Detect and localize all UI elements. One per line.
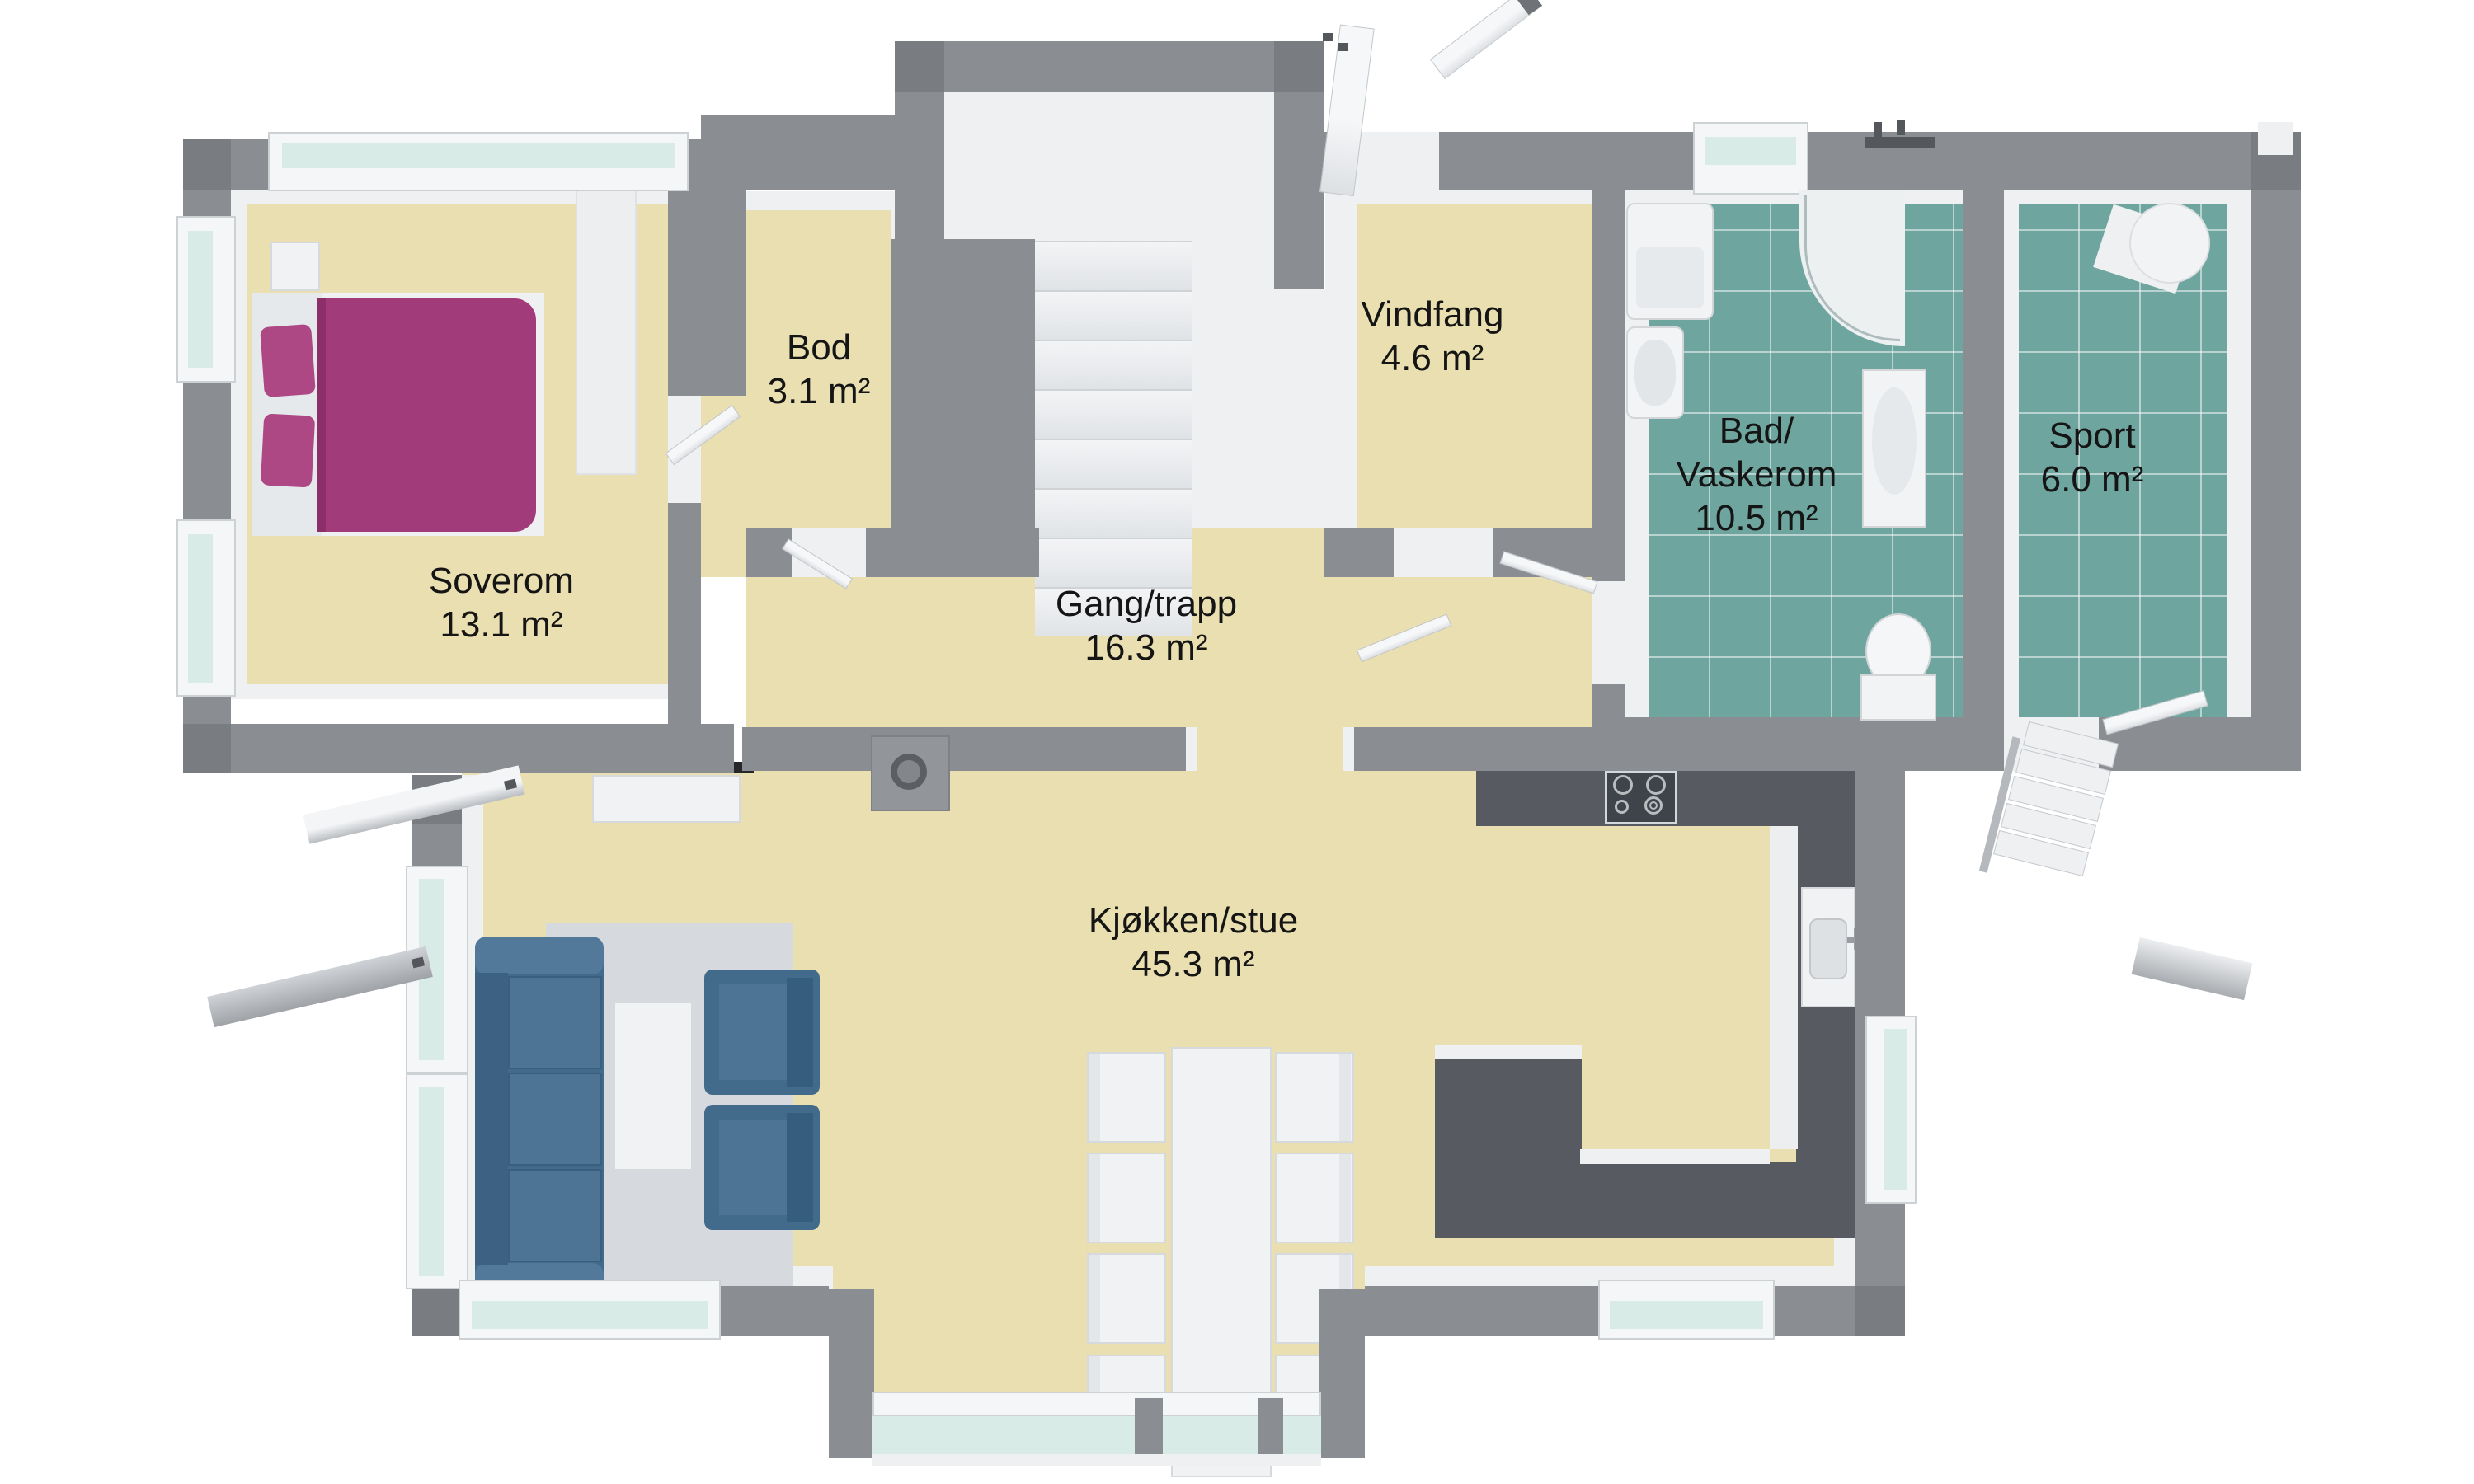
stair-tread bbox=[1035, 340, 1192, 389]
room-area: 45.3 m² bbox=[1089, 942, 1298, 986]
wall-stair-core bbox=[891, 239, 1035, 577]
door-opening bbox=[1348, 132, 1439, 190]
wall bbox=[1347, 727, 1625, 771]
kitchen-counter-bottom bbox=[1580, 1162, 1855, 1238]
wall-bay-pier bbox=[1319, 1289, 1365, 1458]
stair-tread bbox=[1035, 538, 1192, 587]
wall bbox=[183, 724, 734, 773]
bath-window-glass bbox=[1705, 137, 1796, 165]
room-name: Kjøkken/stue bbox=[1089, 899, 1298, 942]
gang-floor-upper bbox=[1192, 528, 1324, 577]
wall bbox=[701, 190, 746, 396]
dining-chair-back bbox=[1089, 1054, 1100, 1141]
stair-landing bbox=[944, 91, 1274, 241]
room-name: Gang/trapp bbox=[1056, 582, 1237, 626]
shower-mixer-knob bbox=[1874, 122, 1882, 137]
room-label-vindfang: Vindfang 4.6 m² bbox=[1362, 293, 1504, 380]
dining-chair-back bbox=[1339, 1154, 1351, 1242]
wall-corner bbox=[183, 139, 231, 190]
window-glass bbox=[188, 534, 213, 683]
room-name: Bod bbox=[768, 326, 871, 369]
door-jamb bbox=[1343, 727, 1354, 771]
window-glass bbox=[282, 143, 675, 168]
room-name: Sport bbox=[2041, 414, 2144, 458]
sofa-armrest bbox=[475, 937, 604, 974]
room-area: 6.0 m² bbox=[2041, 458, 2144, 501]
bay-window-glass bbox=[872, 1416, 1321, 1454]
room-name: Vindfang bbox=[1362, 293, 1504, 336]
wall bbox=[2251, 190, 2301, 771]
wall-stair-enclosure bbox=[895, 41, 1324, 92]
window-glass bbox=[188, 231, 213, 368]
room-label-soverom: Soverom 13.1 m² bbox=[429, 559, 574, 646]
dining-chair-back bbox=[1339, 1054, 1351, 1141]
stair-tread bbox=[1035, 439, 1192, 488]
wall-corner bbox=[1855, 1286, 1905, 1336]
wall bbox=[1625, 717, 2004, 771]
armchair-seat bbox=[719, 984, 788, 1080]
wall bbox=[701, 115, 895, 190]
kitchen-sink-basin bbox=[1809, 918, 1847, 979]
stair-tread bbox=[1035, 290, 1192, 340]
wall-corner bbox=[1274, 41, 1324, 92]
window-glass bbox=[419, 1087, 444, 1276]
door-opening bbox=[1592, 581, 1625, 684]
wall bbox=[1324, 528, 1394, 577]
open-window-shutter bbox=[207, 946, 433, 1027]
wall bbox=[746, 528, 792, 577]
window-glass bbox=[472, 1301, 708, 1329]
wall bbox=[1592, 528, 1625, 581]
bed-pillow bbox=[261, 413, 315, 487]
vanity-basin bbox=[1872, 387, 1917, 495]
room-label-sport: Sport 6.0 m² bbox=[2041, 414, 2144, 501]
wall bbox=[668, 190, 701, 396]
nightstand bbox=[270, 242, 320, 291]
room-area: 4.6 m² bbox=[1362, 336, 1504, 380]
sofa-cushion bbox=[508, 1073, 602, 1166]
bay-window-mullion bbox=[1258, 1398, 1283, 1454]
room-area: 16.3 m² bbox=[1056, 626, 1237, 669]
bay-window-sill bbox=[872, 1392, 1321, 1416]
room-label-bad-vaskerom: Bad/ Vaskerom 10.5 m² bbox=[1677, 409, 1837, 540]
kitchen-cabinet-face bbox=[1770, 826, 1798, 1149]
dining-chair-back bbox=[1089, 1154, 1100, 1242]
exterior-sill bbox=[2132, 937, 2253, 1000]
wall-bay-pier bbox=[829, 1289, 874, 1458]
coffee-table bbox=[614, 1001, 693, 1171]
stair-tread bbox=[1035, 488, 1192, 538]
wall-corner bbox=[183, 724, 231, 773]
washing-machine-lid bbox=[1636, 247, 1704, 308]
dining-chair-back bbox=[1089, 1255, 1100, 1342]
wall bbox=[1592, 190, 1625, 528]
room-label-kjokken-stue: Kjøkken/stue 45.3 m² bbox=[1089, 899, 1298, 986]
cooktop-burner-ring bbox=[1649, 801, 1658, 810]
armchair-back bbox=[787, 1113, 813, 1222]
wall-corner bbox=[895, 41, 944, 92]
room-label-bod: Bod 3.1 m² bbox=[768, 326, 871, 413]
wall bbox=[1365, 1286, 1600, 1336]
armchair-back bbox=[787, 978, 813, 1087]
shower-mixer bbox=[1865, 137, 1935, 148]
room-name: Bad/ bbox=[1677, 409, 1837, 453]
water-heater bbox=[2129, 203, 2210, 284]
wall bbox=[742, 727, 1192, 771]
sofa-cushion bbox=[508, 1169, 602, 1262]
wall bbox=[1439, 132, 1625, 190]
room-area: 13.1 m² bbox=[429, 603, 574, 646]
shower-mixer-knob bbox=[1897, 120, 1905, 135]
wall bbox=[866, 528, 1039, 577]
room-area: 3.1 m² bbox=[768, 369, 871, 413]
stair-side-face-right bbox=[1192, 241, 1274, 528]
kitchen-island-stub bbox=[1435, 1057, 1582, 1238]
wall bbox=[719, 1286, 829, 1336]
wardrobe bbox=[576, 186, 637, 475]
room-area: 10.5 m² bbox=[1677, 496, 1837, 540]
entrance-door-leaf bbox=[1430, 0, 1542, 79]
room-label-gang-trapp: Gang/trapp 16.3 m² bbox=[1056, 582, 1237, 669]
entrance-door-hinge bbox=[1338, 43, 1348, 51]
sofa-back bbox=[475, 973, 508, 1265]
wall-notch bbox=[2258, 122, 2293, 155]
chimney-flue bbox=[891, 754, 927, 790]
bay-window-outer-sill bbox=[872, 1454, 1321, 1466]
toilet-tank bbox=[1860, 674, 1936, 721]
wall bbox=[668, 503, 701, 724]
kitchen-cabinet-face bbox=[1435, 1045, 1582, 1059]
sofa-cushion bbox=[508, 976, 602, 1069]
cooktop-burner bbox=[1613, 775, 1633, 795]
door-jamb bbox=[1186, 727, 1197, 771]
door-opening bbox=[1394, 528, 1493, 577]
window-glass bbox=[1884, 1029, 1907, 1190]
floor-plan: Soverom 13.1 m² Bod 3.1 m² Vindfang 4.6 … bbox=[0, 0, 2474, 1484]
entrance-door-hinge bbox=[1323, 33, 1333, 41]
bed-duvet bbox=[317, 298, 536, 532]
bath-sink-basin bbox=[1634, 340, 1676, 406]
window-glass bbox=[1610, 1301, 1763, 1329]
stair-side-face-vindfang bbox=[1274, 289, 1325, 528]
stair-tread bbox=[1035, 389, 1192, 439]
kitchen-cabinet-face bbox=[1580, 1149, 1770, 1164]
bay-window-mullion bbox=[1135, 1398, 1163, 1454]
gang-kitchen-opening-floor bbox=[1192, 727, 1347, 771]
armchair-seat bbox=[719, 1120, 788, 1215]
cooktop-burner bbox=[1615, 800, 1629, 814]
room-name: Soverom bbox=[429, 559, 574, 603]
sideboard bbox=[592, 775, 741, 823]
stair-tread bbox=[1035, 241, 1192, 290]
room-name: Vaskerom bbox=[1677, 453, 1837, 496]
wall bbox=[1963, 190, 2004, 717]
cooktop-burner bbox=[1646, 775, 1666, 795]
bed-pillow bbox=[260, 324, 316, 397]
